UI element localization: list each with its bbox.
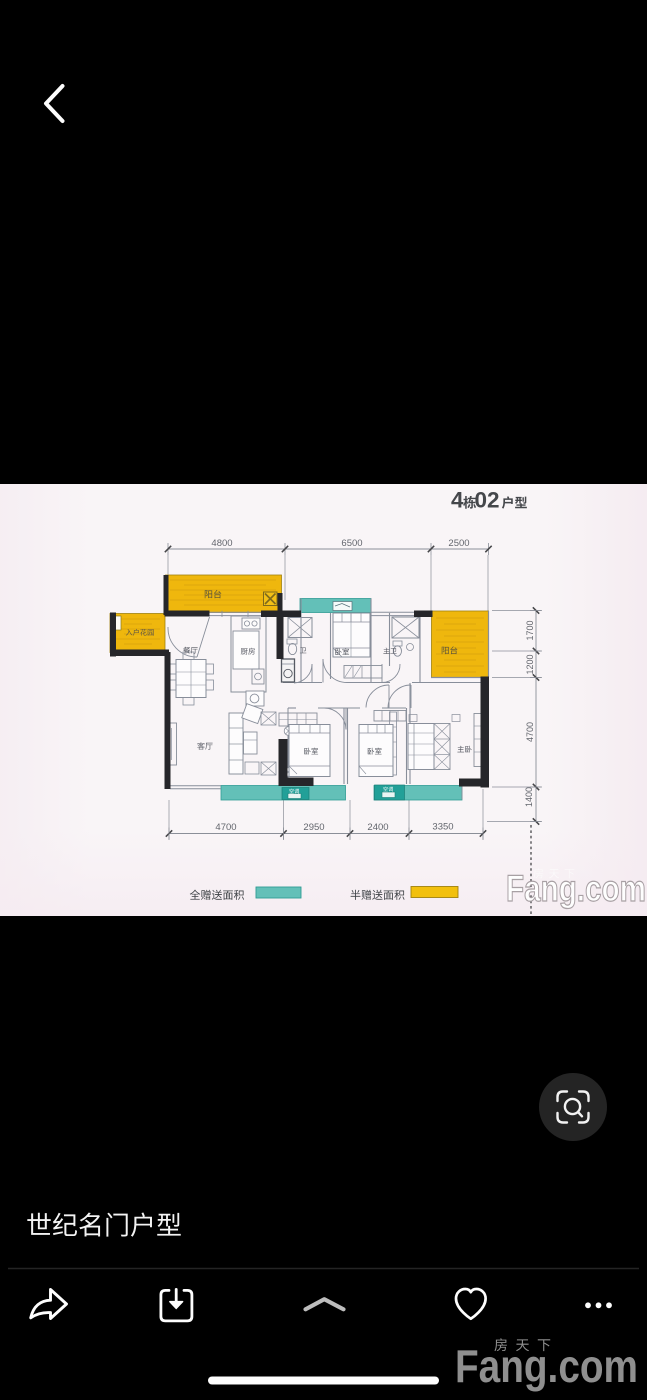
svg-text:Fang.com: Fang.com <box>455 1340 638 1392</box>
svg-text:4800: 4800 <box>211 538 232 549</box>
svg-text:2400: 2400 <box>367 822 388 833</box>
svg-text:Fang.com: Fang.com <box>506 868 646 909</box>
svg-text:1700: 1700 <box>525 620 535 640</box>
svg-text:2500: 2500 <box>448 538 469 549</box>
svg-text:02: 02 <box>475 488 500 513</box>
svg-text:2950: 2950 <box>303 822 324 833</box>
svg-text:4: 4 <box>451 488 464 513</box>
svg-text:1400: 1400 <box>524 787 534 807</box>
svg-text:4700: 4700 <box>525 722 535 742</box>
svg-text:4700: 4700 <box>215 822 236 833</box>
svg-text:1200: 1200 <box>525 654 535 674</box>
svg-text:3350: 3350 <box>432 822 453 833</box>
svg-text:6500: 6500 <box>341 538 362 549</box>
